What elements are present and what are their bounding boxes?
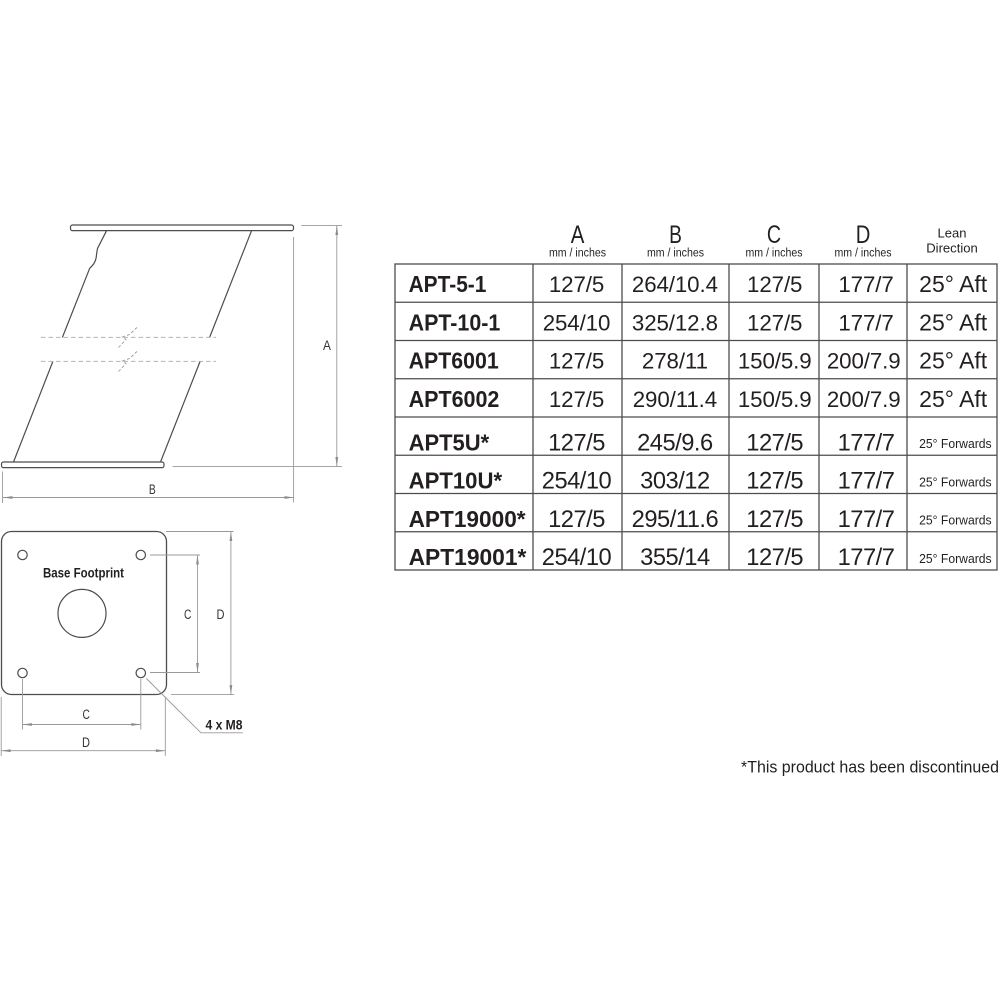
svg-text:25° Forwards: 25° Forwards — [919, 474, 992, 489]
svg-text:127/5: 127/5 — [746, 507, 803, 533]
svg-text:APT-10-1: APT-10-1 — [409, 309, 501, 335]
svg-text:A: A — [323, 338, 331, 353]
svg-text:245/9.6: 245/9.6 — [637, 430, 713, 456]
svg-text:290/11.4: 290/11.4 — [633, 387, 717, 412]
svg-text:127/5: 127/5 — [747, 272, 802, 297]
svg-text:C: C — [83, 707, 91, 722]
svg-text:177/7: 177/7 — [838, 430, 895, 456]
svg-text:127/5: 127/5 — [549, 349, 604, 374]
svg-text:D: D — [856, 221, 871, 249]
svg-text:4 x M8: 4 x M8 — [206, 717, 243, 732]
svg-text:177/7: 177/7 — [838, 272, 893, 297]
svg-text:APT5U*: APT5U* — [409, 429, 490, 455]
svg-text:25° Forwards: 25° Forwards — [919, 551, 992, 566]
svg-text:mm / inches: mm / inches — [746, 247, 803, 259]
svg-text:APT19000*: APT19000* — [409, 506, 526, 532]
svg-text:127/5: 127/5 — [746, 430, 803, 456]
svg-text:177/7: 177/7 — [838, 469, 895, 495]
svg-text:278/11: 278/11 — [642, 349, 708, 374]
svg-text:177/7: 177/7 — [838, 545, 895, 571]
svg-text:B: B — [149, 482, 156, 497]
svg-text:D: D — [82, 735, 90, 750]
svg-text:254/10: 254/10 — [542, 545, 612, 571]
svg-text:APT19001*: APT19001* — [409, 544, 527, 570]
svg-text:200/7.9: 200/7.9 — [827, 387, 901, 412]
svg-text:177/7: 177/7 — [838, 507, 895, 533]
svg-text:A: A — [571, 221, 585, 249]
svg-text:*This product has been discont: *This product has been discontinued — [741, 757, 999, 776]
svg-text:B: B — [669, 221, 682, 249]
svg-text:355/14: 355/14 — [640, 545, 710, 571]
svg-text:C: C — [184, 607, 192, 622]
svg-text:25° Aft: 25° Aft — [919, 386, 988, 412]
svg-text:127/5: 127/5 — [549, 387, 604, 412]
svg-text:APT10U*: APT10U* — [409, 468, 503, 494]
svg-text:303/12: 303/12 — [640, 469, 709, 495]
svg-text:150/5.9: 150/5.9 — [738, 387, 812, 412]
svg-text:200/7.9: 200/7.9 — [827, 349, 901, 374]
svg-text:325/12.8: 325/12.8 — [632, 310, 718, 335]
svg-text:295/11.6: 295/11.6 — [632, 507, 719, 533]
svg-text:127/5: 127/5 — [549, 272, 604, 297]
svg-text:264/10.4: 264/10.4 — [632, 272, 718, 297]
svg-text:25° Aft: 25° Aft — [919, 309, 988, 335]
svg-text:127/5: 127/5 — [746, 469, 803, 495]
svg-text:Base Footprint: Base Footprint — [43, 566, 124, 581]
svg-text:APT6001: APT6001 — [409, 348, 499, 374]
svg-text:127/5: 127/5 — [548, 430, 605, 456]
svg-text:D: D — [217, 607, 225, 622]
svg-text:127/5: 127/5 — [747, 310, 802, 335]
svg-text:25° Forwards: 25° Forwards — [919, 513, 992, 528]
svg-text:127/5: 127/5 — [746, 545, 803, 571]
svg-text:mm / inches: mm / inches — [647, 247, 704, 259]
svg-text:APT-5-1: APT-5-1 — [409, 271, 487, 297]
svg-text:APT6002: APT6002 — [409, 386, 500, 412]
svg-text:150/5.9: 150/5.9 — [738, 349, 812, 374]
svg-text:mm / inches: mm / inches — [549, 247, 606, 259]
svg-text:Lean: Lean — [938, 226, 967, 241]
svg-text:C: C — [767, 221, 781, 249]
svg-text:254/10: 254/10 — [543, 310, 611, 335]
svg-text:177/7: 177/7 — [838, 310, 893, 335]
svg-text:25° Aft: 25° Aft — [919, 271, 988, 297]
svg-text:127/5: 127/5 — [548, 507, 605, 533]
svg-text:254/10: 254/10 — [542, 469, 612, 495]
svg-text:mm / inches: mm / inches — [835, 247, 892, 259]
svg-text:Direction: Direction — [926, 241, 978, 256]
svg-text:25° Forwards: 25° Forwards — [919, 436, 992, 451]
svg-text:25° Aft: 25° Aft — [919, 348, 988, 374]
